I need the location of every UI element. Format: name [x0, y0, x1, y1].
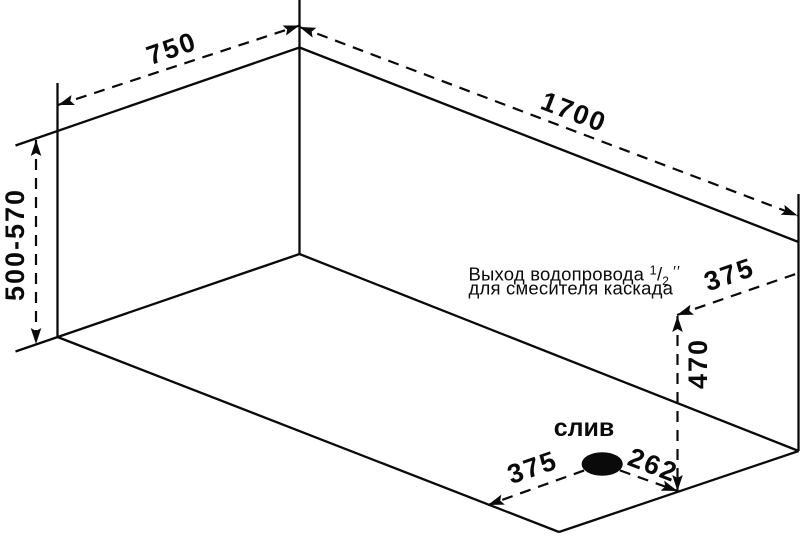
svg-text:470: 470: [683, 338, 713, 389]
svg-text:слив: слив: [554, 414, 615, 442]
svg-text:500-570: 500-570: [0, 188, 30, 301]
svg-text:для смесителя каскада: для смесителя каскада: [469, 278, 674, 299]
